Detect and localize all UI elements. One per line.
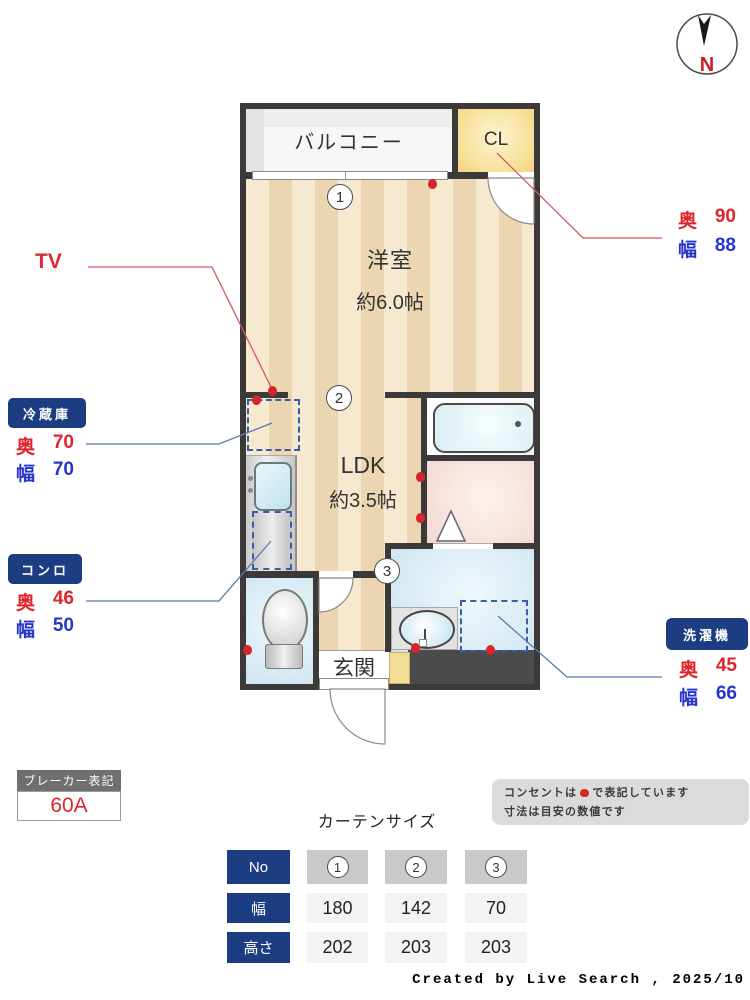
curtain-marker-3-number: 3 — [383, 563, 391, 580]
wall-toilet-top — [240, 571, 319, 578]
curtain-table-header-1: 1 — [307, 850, 368, 884]
fridge-width-label: 幅 — [16, 459, 35, 486]
wall-bath-top — [385, 392, 540, 398]
washer-space-outline — [460, 600, 528, 652]
curtain-header-number-1: 1 — [334, 860, 341, 875]
stove-width-value: 50 — [53, 615, 74, 642]
stove-depth-row: 奥 46 — [16, 588, 74, 615]
entrance-door-swing — [330, 689, 385, 744]
washstand-faucet-base — [419, 639, 427, 647]
washer-depth-value: 45 — [716, 655, 737, 682]
balcony-label: バルコニー — [246, 128, 452, 152]
curtain-height-3: 203 — [465, 932, 527, 963]
curtain-table-title: カーテンサイズ — [227, 808, 527, 830]
curtain-height-1: 202 — [307, 932, 368, 963]
curtain-marker-1: 1 — [327, 184, 353, 210]
wall-outer-top — [240, 103, 540, 109]
bathtub — [433, 403, 535, 453]
closet-depth-row: 奥 90 — [678, 206, 736, 233]
outlet-dot — [416, 513, 425, 523]
kitchen-sink — [254, 462, 292, 511]
fridge-space-outline — [247, 399, 300, 451]
curtain-header-marker-1: 1 — [327, 856, 349, 878]
curtain-width-2: 142 — [385, 893, 447, 923]
fridge-depth-value: 70 — [53, 432, 74, 459]
curtain-width-3: 70 — [465, 893, 527, 923]
curtain-table-corner: No — [227, 850, 290, 884]
curtain-height-2: 203 — [385, 932, 447, 963]
washer-width-row: 幅 66 — [679, 683, 737, 710]
wall-room-divider-stub — [240, 392, 288, 398]
dressing-room-floor — [427, 461, 534, 543]
western-room-size: 約6.0帖 — [280, 288, 500, 312]
kitchen-knob — [248, 488, 253, 493]
stove-depth-value: 46 — [53, 588, 74, 615]
closet-width-label: 幅 — [678, 235, 697, 262]
outlet-dot — [252, 395, 261, 405]
fridge-width-row: 幅 70 — [16, 459, 74, 486]
washer-depth-row: 奥 45 — [679, 655, 737, 682]
outlet-dot — [486, 645, 495, 655]
closet-label: CL — [458, 128, 534, 152]
bathtub-drain — [515, 421, 521, 427]
ldk-size: 約3.5帖 — [290, 486, 436, 510]
washer-width-value: 66 — [716, 683, 737, 710]
curtain-header-number-3: 3 — [492, 860, 499, 875]
western-room-label: 洋室 — [280, 246, 500, 272]
toilet-tank — [265, 644, 303, 669]
tv-label: TV — [35, 250, 62, 274]
wall-bath-divider — [421, 455, 540, 461]
closet-width-value: 88 — [715, 235, 736, 262]
legend-note: コンセントはで表記しています 寸法は目安の数値です — [492, 779, 749, 825]
closet-width-row: 幅 88 — [678, 235, 736, 262]
ldk-label: LDK — [300, 452, 426, 478]
curtain-row-label-width: 幅 — [227, 893, 290, 923]
window-1-sash — [252, 171, 448, 180]
curtain-marker-3: 3 — [374, 558, 400, 584]
curtain-marker-2-number: 2 — [335, 390, 343, 407]
closet-door-opening — [488, 172, 534, 179]
stove-tag: コンロ — [8, 554, 82, 584]
entrance-label: 玄関 — [321, 654, 387, 680]
closet-depth-value: 90 — [715, 206, 736, 233]
closet-depth-label: 奥 — [678, 206, 697, 233]
curtain-row-label-height: 高さ — [227, 932, 290, 963]
outlet-dot — [411, 643, 420, 653]
breaker-value: 60A — [17, 791, 121, 821]
fridge-width-value: 70 — [53, 459, 74, 486]
washer-depth-label: 奥 — [679, 655, 698, 682]
wall-outer-bottom-left — [240, 684, 320, 690]
washer-width-label: 幅 — [679, 683, 698, 710]
wall-toilet-right — [313, 571, 319, 690]
hall-door-opening — [319, 571, 353, 578]
floorplan-page: N 1 2 3 バルコニー CL 洋室 約6.0帖 LDK 約3.5帖 玄関 T… — [0, 0, 750, 1000]
window-1-mullion — [345, 172, 346, 179]
shoe-cabinet — [389, 652, 410, 684]
compass-needle-icon — [698, 15, 711, 46]
curtain-table-header-3: 3 — [465, 850, 527, 884]
outlet-dot — [243, 645, 252, 655]
stove-width-label: 幅 — [16, 615, 35, 642]
curtain-marker-2: 2 — [326, 385, 352, 411]
washer-tag: 洗濯機 — [666, 618, 748, 650]
legend-line1-prefix: コンセントは — [504, 787, 577, 799]
credit-line: Created by Live Search , 2025/10 — [400, 972, 745, 992]
toilet-bowl — [262, 589, 308, 651]
curtain-marker-1-number: 1 — [336, 189, 344, 206]
stove-depth-label: 奥 — [16, 588, 35, 615]
outlet-dot — [268, 386, 277, 396]
fridge-tag: 冷蔵庫 — [8, 398, 86, 428]
compass-north-label: N — [700, 54, 714, 76]
washstand-basin — [399, 610, 455, 649]
outlet-symbol-icon — [580, 789, 589, 797]
compass-circle — [677, 14, 737, 74]
stove-space-outline — [252, 511, 292, 570]
outlet-dot — [428, 179, 437, 189]
curtain-table-header-2: 2 — [385, 850, 447, 884]
curtain-header-marker-2: 2 — [405, 856, 427, 878]
wall-outer-bottom-right — [389, 684, 540, 690]
curtain-width-1: 180 — [307, 893, 368, 923]
fridge-depth-row: 奥 70 — [16, 432, 74, 459]
curtain-header-number-2: 2 — [412, 860, 419, 875]
kitchen-knob — [248, 476, 253, 481]
curtain-header-marker-3: 3 — [485, 856, 507, 878]
fridge-depth-label: 奥 — [16, 432, 35, 459]
breaker-title: ブレーカー表記 — [17, 770, 121, 791]
dressing-door-opening — [433, 543, 493, 549]
legend-line1-suffix: で表記しています — [592, 787, 689, 799]
stove-width-row: 幅 50 — [16, 615, 74, 642]
